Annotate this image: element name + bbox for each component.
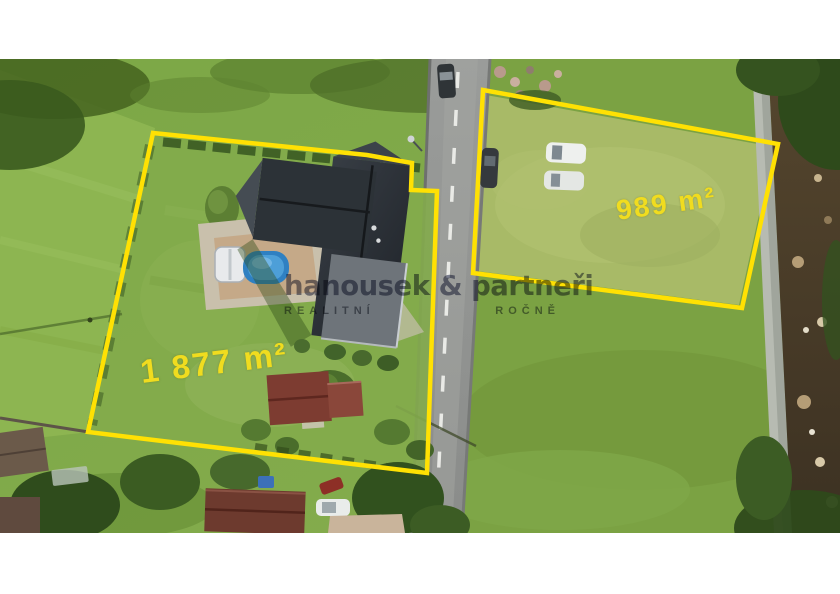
white-car xyxy=(316,499,350,516)
bottom-left-house xyxy=(0,427,49,478)
property-listing-photo: hanousek & partneři REALITNÍ ROČNĚ 1 877… xyxy=(0,0,840,594)
parked-white-car-1 xyxy=(546,142,587,164)
bottom-left-shed xyxy=(0,497,40,533)
lower-roof xyxy=(321,254,407,348)
parked-dark-car xyxy=(480,148,499,189)
aerial-photo xyxy=(0,0,840,594)
blue-bin xyxy=(258,476,274,488)
neighbor-house-roof xyxy=(204,488,305,534)
parked-white-car-2 xyxy=(544,170,585,190)
beige-building xyxy=(328,514,405,533)
aerial-scene xyxy=(0,0,840,594)
car-on-road xyxy=(437,63,456,98)
